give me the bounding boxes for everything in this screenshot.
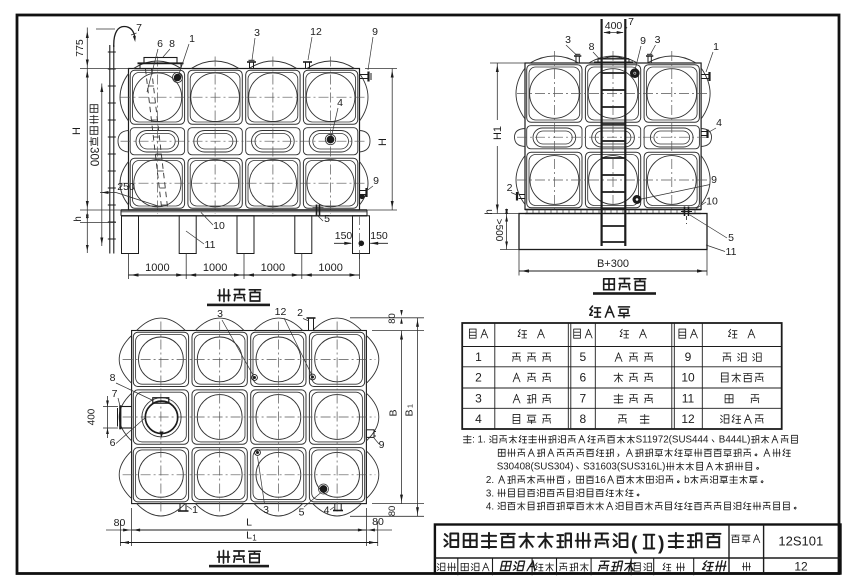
svg-text:h: h [484, 209, 495, 215]
svg-text:1000: 1000 [203, 262, 227, 274]
svg-text:8: 8 [579, 412, 586, 426]
svg-text:L: L [246, 517, 252, 529]
svg-text:4: 4 [337, 97, 343, 109]
svg-text:5: 5 [324, 213, 330, 225]
svg-text:8: 8 [589, 41, 595, 53]
svg-text:S11972(SUS444: S11972(SUS444 [636, 435, 709, 446]
svg-text:9: 9 [640, 35, 646, 47]
svg-text:12: 12 [794, 559, 808, 573]
svg-text:H1: H1 [492, 126, 504, 140]
svg-text:80: 80 [372, 516, 384, 528]
svg-text:7: 7 [136, 22, 142, 34]
svg-text:3: 3 [655, 34, 661, 46]
svg-text:1000: 1000 [145, 262, 169, 274]
svg-text:12: 12 [275, 306, 287, 318]
svg-text:400: 400 [87, 408, 98, 425]
svg-text:>500: >500 [493, 219, 504, 242]
svg-text:1: 1 [713, 41, 719, 53]
svg-text:1: 1 [252, 534, 257, 543]
svg-text:250: 250 [117, 181, 135, 193]
svg-text:1000: 1000 [318, 262, 342, 274]
svg-text:1: 1 [406, 404, 415, 408]
svg-text:4: 4 [716, 117, 722, 129]
svg-text:H: H [71, 127, 83, 135]
svg-text:b: b [684, 475, 690, 486]
svg-text:10: 10 [213, 220, 225, 232]
svg-text:8: 8 [169, 38, 175, 50]
svg-text:5: 5 [728, 232, 734, 244]
svg-text:2: 2 [297, 307, 303, 319]
svg-text:S31603(SUS316L): S31603(SUS316L) [583, 462, 665, 473]
svg-text:2: 2 [475, 370, 482, 384]
svg-text:L: L [246, 530, 252, 542]
svg-text:8: 8 [110, 372, 116, 384]
svg-text:(: ( [631, 533, 638, 555]
svg-text:H: H [377, 138, 389, 146]
svg-text:16: 16 [595, 475, 606, 486]
svg-text:3: 3 [565, 34, 571, 46]
svg-text:12: 12 [310, 26, 322, 38]
svg-text:11: 11 [205, 239, 216, 251]
svg-text:150: 150 [370, 230, 388, 242]
svg-text:B+300: B+300 [597, 258, 629, 270]
svg-text:12S101: 12S101 [778, 534, 823, 549]
svg-text:4: 4 [324, 505, 330, 517]
svg-text:80: 80 [387, 506, 398, 517]
svg-text:5: 5 [299, 507, 305, 519]
svg-text:9: 9 [372, 26, 378, 38]
svg-text:): ) [658, 533, 665, 555]
svg-text:7: 7 [628, 16, 634, 28]
svg-text:1: 1 [189, 33, 195, 45]
svg-text:3: 3 [263, 504, 269, 516]
svg-text:11: 11 [726, 246, 737, 258]
svg-text:775: 775 [74, 39, 86, 57]
svg-text:150: 150 [335, 230, 353, 242]
svg-text:1: 1 [192, 504, 198, 516]
svg-text:5: 5 [579, 350, 586, 364]
svg-text:3: 3 [475, 392, 482, 406]
svg-text:10: 10 [681, 370, 695, 384]
svg-text:80: 80 [387, 313, 398, 324]
svg-text:10: 10 [706, 196, 718, 208]
svg-text:6: 6 [579, 370, 586, 384]
svg-text:h: h [73, 216, 84, 222]
svg-text:2.: 2. [486, 475, 494, 486]
svg-text:3.: 3. [486, 488, 494, 499]
svg-text:B444L): B444L) [719, 435, 751, 446]
svg-text:9: 9 [373, 175, 379, 187]
svg-text:300: 300 [87, 147, 100, 166]
svg-text:6: 6 [157, 38, 163, 50]
svg-text:1: 1 [475, 350, 482, 364]
svg-text:3: 3 [217, 308, 223, 320]
svg-text:7: 7 [112, 388, 118, 400]
svg-text:S30408(SUS304): S30408(SUS304) [497, 462, 574, 473]
svg-text:B: B [388, 409, 400, 416]
svg-text:4.: 4. [486, 501, 494, 512]
svg-text:400: 400 [605, 20, 623, 32]
svg-text:12: 12 [681, 412, 695, 426]
svg-text:11: 11 [682, 392, 695, 406]
svg-text:3: 3 [254, 27, 260, 39]
svg-text:9: 9 [711, 174, 717, 186]
svg-text:9: 9 [685, 350, 692, 364]
svg-text:6: 6 [110, 437, 116, 449]
svg-text:B: B [404, 409, 416, 416]
svg-text:4: 4 [475, 412, 482, 426]
svg-text:80: 80 [114, 517, 126, 529]
svg-text:: 1.: : 1. [472, 435, 486, 446]
svg-text:1000: 1000 [261, 262, 285, 274]
svg-text:2: 2 [507, 182, 513, 194]
svg-text:9: 9 [379, 439, 385, 451]
svg-text:7: 7 [579, 392, 586, 406]
